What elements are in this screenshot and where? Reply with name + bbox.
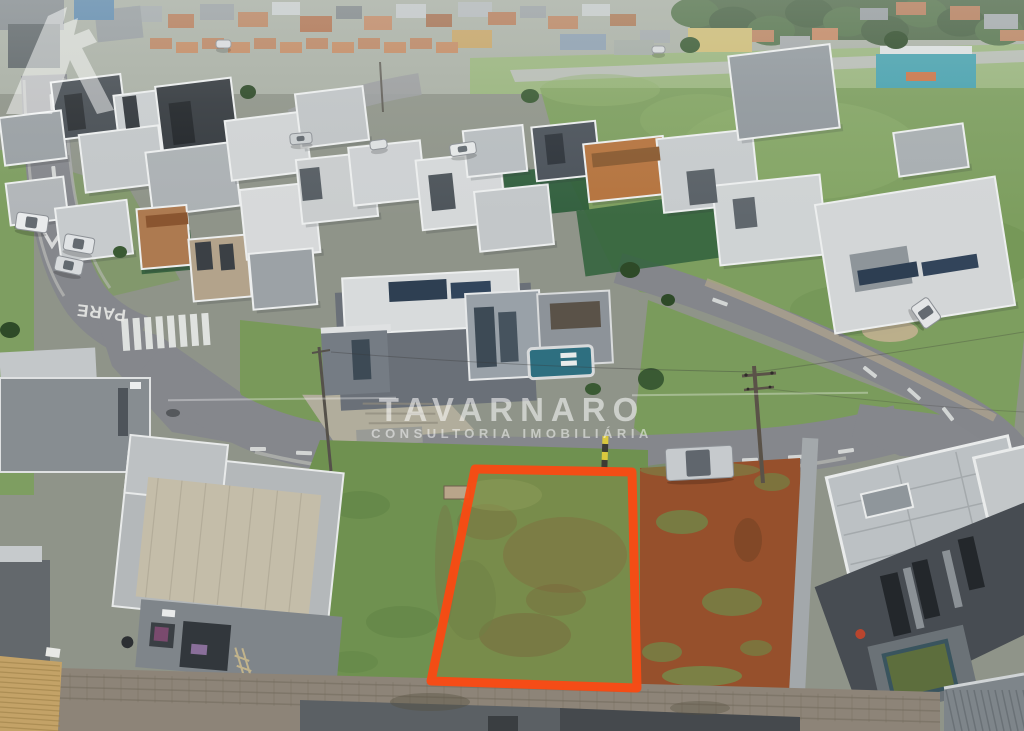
tree [620,262,640,278]
center-house [296,265,616,449]
house-opening [299,167,322,201]
crosswalk-stripe [201,313,210,345]
car [290,132,313,150]
house-opening [732,197,757,229]
tree [113,246,127,258]
distant-town [0,0,1024,94]
car [652,46,665,58]
ground-patch [740,640,772,656]
ground-patch [754,473,790,491]
house-block [893,123,972,181]
field-patch [540,74,660,106]
house-opening [219,243,235,270]
house-opening [544,133,565,165]
crosswalk-stripe [190,314,199,346]
tree [680,37,700,53]
house-block [712,174,831,269]
crosswalk-stripe [178,315,187,347]
car [216,40,231,53]
aerial-photo: PARE [0,0,1024,731]
scene-svg: PARE [0,0,1024,731]
tree [638,368,664,390]
car [665,445,734,485]
ground-patch [366,606,438,638]
striped-bollard [601,436,608,467]
house-opening [686,169,717,206]
house-block [474,184,557,256]
lane-dash [296,451,312,456]
ground-patch [702,588,762,616]
tree [661,294,675,306]
tree [521,89,539,103]
tree [884,31,908,49]
ground-patch [662,666,742,686]
tree [240,85,256,99]
house-opening [428,173,456,211]
house-block [249,248,321,314]
house-block [728,44,843,144]
tree [0,322,20,338]
ground-patch [642,642,682,662]
house-opening [195,241,213,270]
ground-patch [656,510,708,534]
lane-dash [250,447,266,451]
ground-patch [734,518,762,562]
tree [585,383,601,395]
house-block [0,110,70,170]
